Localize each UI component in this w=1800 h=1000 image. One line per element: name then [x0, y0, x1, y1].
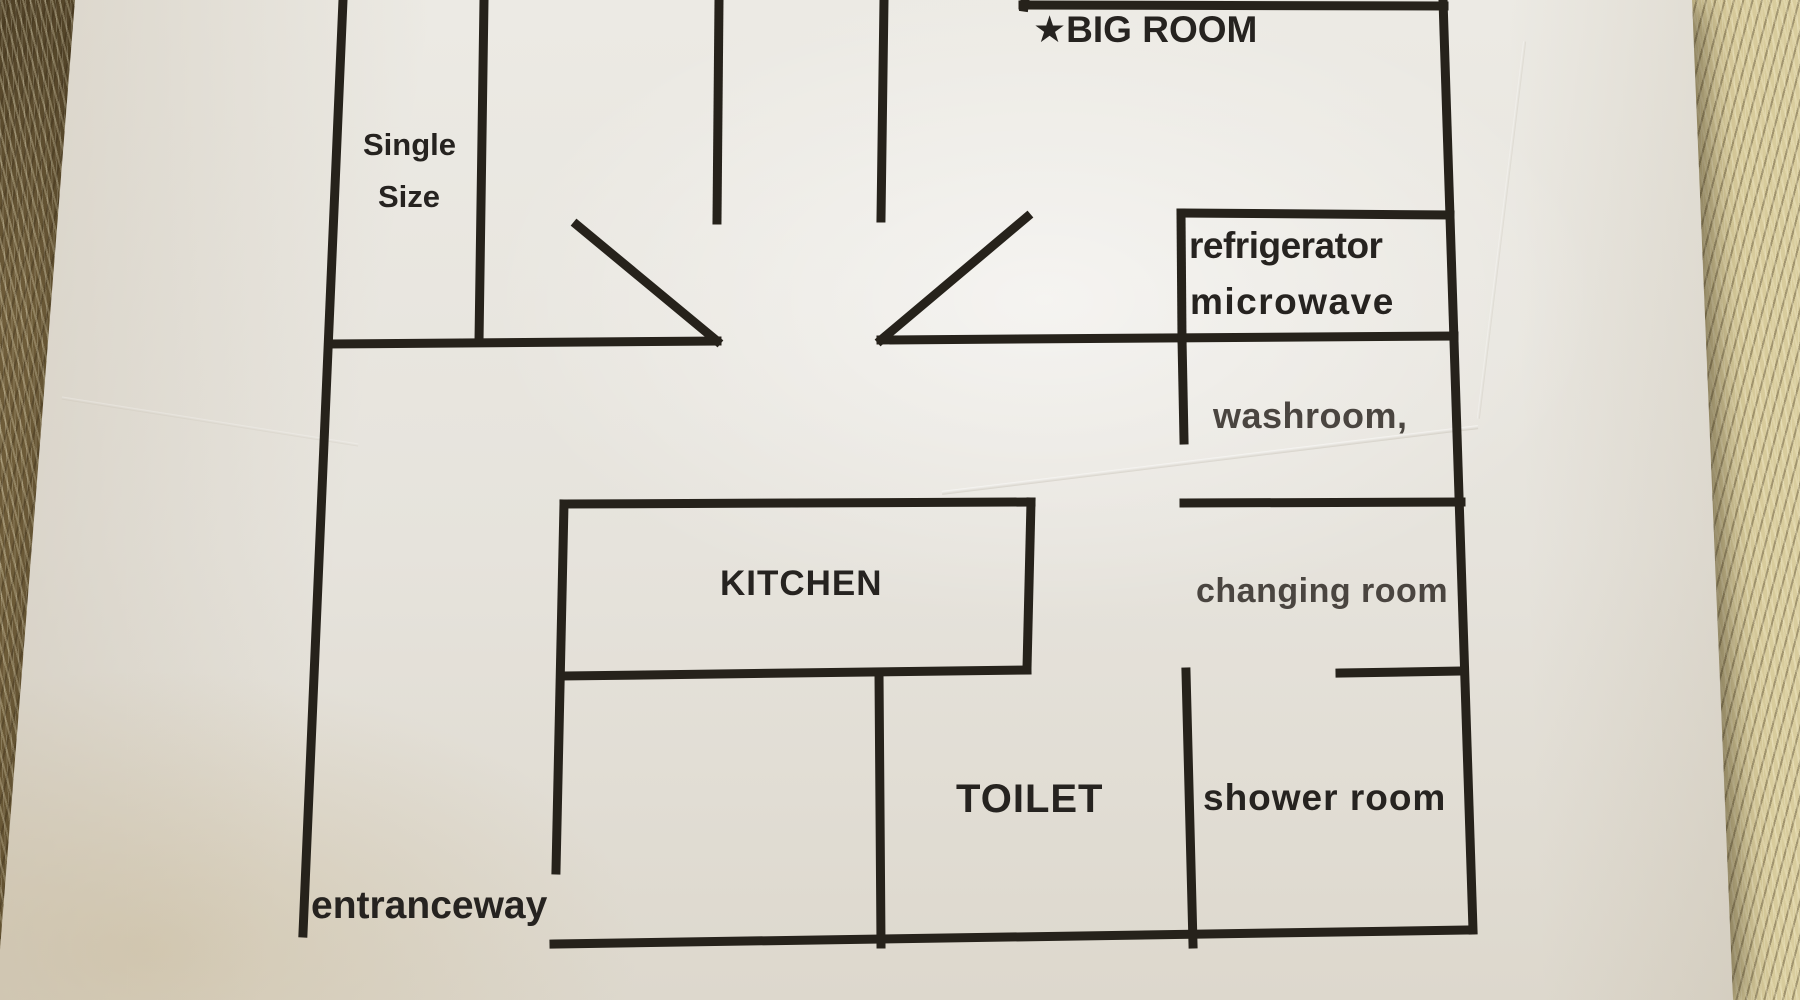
- room-label-toilet: TOILET: [956, 779, 1103, 819]
- shower-room-top-stub: [1340, 671, 1464, 673]
- door-swing-right: [881, 217, 1027, 340]
- big-room-top-box-left-stub: [1024, 0, 1025, 7]
- room-label-washroom: washroom,: [1213, 398, 1408, 434]
- kitchen-right-wall: [1027, 502, 1031, 668]
- passage-right-wall: [881, 0, 884, 218]
- kitchen-bottom-wall: [564, 670, 1027, 676]
- kitchen-left-wall: [556, 504, 564, 870]
- room-label-changing-room: changing room: [1196, 574, 1448, 608]
- shower-room-left-wall: [1186, 672, 1193, 944]
- floor-plan-walls: [0, 0, 1800, 1000]
- refrigerator-box-left-wall: [1181, 213, 1182, 339]
- passage-left-wall: [717, 0, 719, 220]
- refrigerator-box-top-wall: [1182, 213, 1450, 215]
- room-label-kitchen: KITCHEN: [720, 566, 883, 601]
- room-label-entranceway: entranceway: [311, 886, 547, 925]
- door-swing-left: [577, 225, 717, 341]
- room-label-single-size-2: Size: [378, 181, 440, 212]
- room-label-big-room: ★BIG ROOM: [1033, 11, 1257, 48]
- kitchen-top-wall: [564, 502, 1031, 504]
- hall-top-wall-right: [881, 336, 1454, 340]
- photo-scene: ★BIG ROOM Single Size refrigerator micro…: [0, 0, 1800, 1000]
- washroom-door-wall: [1182, 339, 1184, 440]
- hall-top-wall-left: [329, 341, 717, 344]
- toilet-left-wall: [879, 674, 881, 944]
- right-outer-wall: [1443, 0, 1473, 930]
- single-room-right-wall: [479, 0, 484, 341]
- label-microwave: microwave: [1190, 283, 1395, 320]
- label-refrigerator: refrigerator: [1189, 227, 1382, 264]
- washroom-bottom-wall: [1184, 502, 1461, 503]
- bottom-outer-wall: [554, 930, 1470, 944]
- left-outer-wall: [303, 0, 343, 933]
- big-room-top-box-bottom-wall: [1023, 5, 1444, 6]
- room-label-single-size-1: Single: [363, 129, 456, 160]
- room-label-shower-room: shower room: [1203, 779, 1446, 816]
